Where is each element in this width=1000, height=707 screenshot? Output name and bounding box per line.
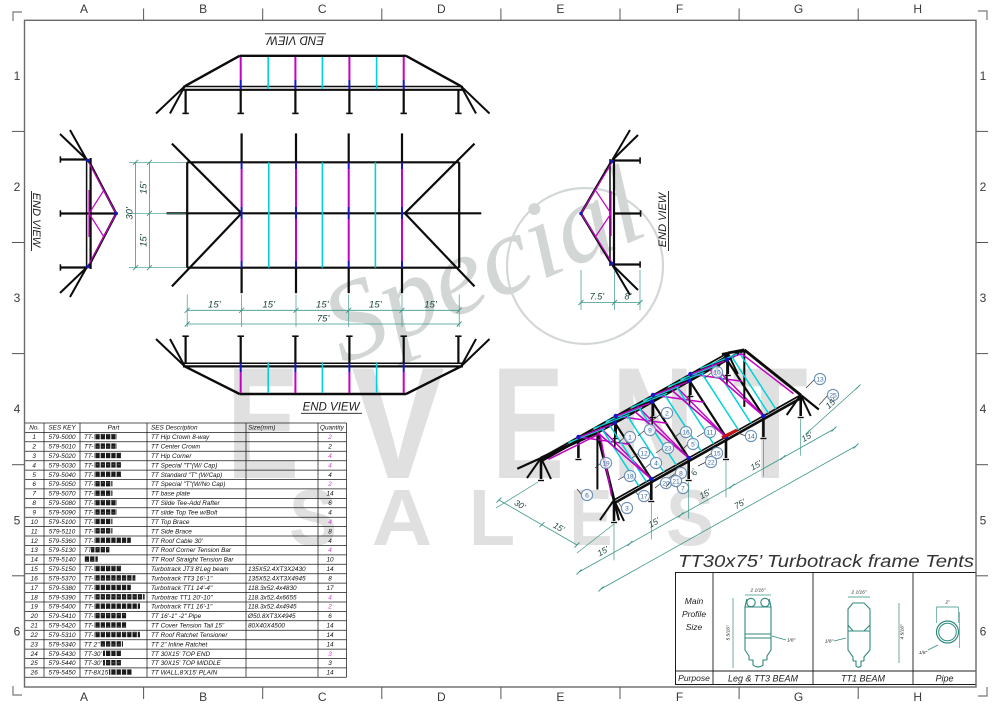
svg-text:Part: Part	[108, 425, 120, 432]
svg-text:Turbotrack TT1 14'-4": Turbotrack TT1 14'-4"	[151, 585, 213, 592]
svg-text:579-5310: 579-5310	[48, 632, 75, 639]
svg-text:Turbotrack TT1 16'-1": Turbotrack TT1 16'-1"	[151, 604, 213, 611]
svg-text:135X52.4XT3X4945: 135X52.4XT3X4945	[248, 575, 306, 582]
svg-text:2: 2	[327, 434, 332, 441]
svg-text:18: 18	[626, 473, 634, 480]
svg-text:1: 1	[628, 434, 632, 441]
svg-text:TT Special "T"(W/No Cap): TT Special "T"(W/No Cap)	[151, 481, 226, 488]
svg-text:579-5040: 579-5040	[48, 472, 75, 479]
svg-text:4: 4	[328, 462, 332, 469]
svg-text:TT-: TT-	[84, 575, 93, 582]
svg-text:TT WALL,8'X15' PLAIN: TT WALL,8'X15' PLAIN	[151, 670, 218, 677]
svg-text:END VIEW: END VIEW	[303, 402, 361, 414]
svg-text:8: 8	[32, 500, 36, 507]
svg-text:No.: No.	[29, 425, 39, 432]
svg-text:TT slide Top Tee w/Bolt: TT slide Top Tee w/Bolt	[151, 510, 218, 517]
svg-text:SES Description: SES Description	[151, 425, 198, 432]
svg-text:579-5440: 579-5440	[48, 660, 75, 667]
svg-text:579-5380: 579-5380	[48, 585, 75, 592]
svg-text:TT-: TT-	[84, 462, 93, 469]
svg-text:F: F	[676, 2, 683, 16]
svg-text:5: 5	[32, 472, 36, 479]
svg-text:16: 16	[682, 429, 690, 436]
svg-text:14: 14	[326, 623, 334, 630]
svg-text:3: 3	[625, 505, 629, 512]
svg-text:3: 3	[328, 660, 332, 667]
svg-text:26: 26	[30, 670, 39, 677]
svg-text:TT Slide Tee-Add Rafter: TT Slide Tee-Add Rafter	[151, 500, 221, 507]
svg-text:A: A	[80, 2, 88, 16]
svg-text:17: 17	[326, 585, 334, 592]
svg-text:Pipe: Pipe	[935, 674, 953, 684]
svg-text:2: 2	[327, 481, 332, 488]
svg-text:TT-: TT-	[84, 453, 93, 460]
svg-text:579-5030: 579-5030	[48, 462, 75, 469]
svg-text:118.3x52.4x6655: 118.3x52.4x6655	[248, 594, 297, 601]
svg-text:6: 6	[980, 624, 987, 638]
svg-text:2: 2	[980, 180, 987, 194]
svg-text:TT base plate: TT base plate	[151, 491, 191, 498]
svg-text:4: 4	[328, 538, 332, 545]
svg-text:6: 6	[585, 492, 589, 499]
svg-text:579-5370: 579-5370	[48, 575, 75, 582]
svg-text:20: 20	[30, 613, 39, 620]
svg-text:24: 24	[30, 651, 39, 658]
svg-text:118.3x52.4x4945: 118.3x52.4x4945	[248, 604, 297, 611]
svg-text:16: 16	[31, 575, 39, 582]
svg-text:14: 14	[747, 433, 755, 440]
svg-text:19: 19	[602, 460, 610, 467]
svg-text:23: 23	[30, 641, 39, 648]
svg-text:TT1 BEAM: TT1 BEAM	[841, 674, 886, 684]
svg-text:579-5410: 579-5410	[48, 613, 75, 620]
svg-text:15’: 15’	[139, 233, 150, 247]
svg-text:17: 17	[31, 585, 39, 592]
svg-text:579-5420: 579-5420	[48, 623, 75, 630]
svg-text:Leg & TT3 BEAM: Leg & TT3 BEAM	[728, 674, 799, 684]
svg-text:TT 30X15' TOP MIDDLE: TT 30X15' TOP MIDDLE	[151, 660, 222, 667]
svg-text:4: 4	[654, 460, 658, 467]
svg-text:2: 2	[327, 444, 332, 451]
svg-text:15’: 15’	[369, 300, 383, 311]
svg-text:579-5110: 579-5110	[49, 528, 76, 535]
svg-text:5: 5	[691, 441, 695, 448]
svg-text:Turbotrac TT1 20'-10": Turbotrac TT1 20'-10"	[151, 594, 213, 601]
svg-text:TT-: TT-	[84, 585, 93, 592]
svg-text:6: 6	[328, 613, 332, 620]
svg-text:579-5090: 579-5090	[48, 510, 75, 517]
svg-text:25: 25	[30, 660, 39, 667]
svg-text:579-5000: 579-5000	[48, 434, 75, 441]
svg-text:3: 3	[980, 291, 987, 305]
svg-text:2: 2	[31, 444, 36, 451]
svg-text:80X40X4500: 80X40X4500	[248, 623, 285, 630]
svg-text:13: 13	[31, 547, 39, 554]
svg-text:579-5130: 579-5130	[48, 547, 75, 554]
svg-text:TT-: TT-	[84, 594, 93, 601]
svg-text:TT Special "T"(W/ Cap): TT Special "T"(W/ Cap)	[151, 462, 217, 469]
svg-text:7: 7	[681, 485, 685, 492]
svg-text:2: 2	[14, 180, 21, 194]
svg-text:21: 21	[672, 478, 680, 485]
svg-text:579-5010: 579-5010	[48, 444, 75, 451]
svg-text:1/8": 1/8"	[825, 639, 834, 645]
svg-text:4: 4	[980, 402, 987, 416]
svg-text:3: 3	[14, 291, 21, 305]
svg-text:END VIEW: END VIEW	[657, 191, 669, 247]
svg-text:14: 14	[326, 632, 334, 639]
svg-text:TT 30X15' TOP END: TT 30X15' TOP END	[151, 651, 210, 658]
svg-text:TT-: TT-	[84, 481, 93, 488]
svg-text:TT Roof Ratchet Tensioner: TT Roof Ratchet Tensioner	[151, 632, 228, 639]
svg-text:1: 1	[14, 69, 21, 83]
svg-text:SES KEY: SES KEY	[48, 425, 76, 432]
svg-text:TT 16'-1" -2" Pipe: TT 16'-1" -2" Pipe	[151, 613, 202, 620]
svg-text:8: 8	[328, 528, 332, 535]
svg-text:579-5070: 579-5070	[48, 491, 75, 498]
svg-text:11: 11	[707, 429, 714, 436]
svg-text:23: 23	[664, 445, 672, 452]
svg-text:Size(mm): Size(mm)	[248, 425, 275, 432]
svg-text:15’: 15’	[208, 300, 222, 311]
svg-text:Turbotrack JT3 8'Leg beam: Turbotrack JT3 8'Leg beam	[151, 566, 229, 573]
svg-text:Quantity: Quantity	[320, 425, 345, 432]
svg-text:2 1/16": 2 1/16"	[749, 588, 765, 594]
svg-text:4 5/16": 4 5/16"	[900, 624, 906, 639]
svg-text:TT Center Crown: TT Center Crown	[151, 444, 200, 451]
svg-text:E: E	[556, 2, 564, 16]
svg-text:G: G	[794, 690, 803, 704]
svg-text:Profile: Profile	[682, 609, 706, 619]
svg-text:TT Hip Corner: TT Hip Corner	[151, 453, 192, 460]
svg-text:2 1/16": 2 1/16"	[850, 590, 866, 596]
svg-text:Purpose: Purpose	[678, 673, 710, 683]
svg-text:Turbotrack TT3 16'-1": Turbotrack TT3 16'-1"	[151, 575, 213, 582]
svg-text:TT-: TT-	[84, 528, 93, 535]
svg-text:TT-: TT-	[84, 623, 93, 630]
svg-text:2": 2"	[944, 600, 950, 606]
svg-text:1: 1	[32, 434, 36, 441]
svg-text:B: B	[199, 690, 207, 704]
svg-text:579-5430: 579-5430	[48, 651, 75, 658]
svg-text:14: 14	[326, 670, 334, 677]
svg-text:2: 2	[327, 604, 332, 611]
svg-text:TT Side Brace: TT Side Brace	[151, 528, 192, 535]
svg-text:TT 2": TT 2"	[84, 641, 100, 648]
svg-text:TT Hip Crown 8-way: TT Hip Crown 8-way	[151, 434, 210, 441]
svg-text:3: 3	[328, 651, 332, 658]
svg-text:75’: 75’	[317, 313, 331, 324]
svg-text:14: 14	[31, 557, 39, 564]
svg-text:22: 22	[707, 459, 715, 466]
svg-text:7.5’: 7.5’	[590, 292, 606, 302]
svg-text:G: G	[794, 2, 803, 16]
svg-text:6: 6	[14, 624, 21, 638]
svg-text:3: 3	[32, 453, 36, 460]
svg-text:118.3x52.4x4830: 118.3x52.4x4830	[248, 585, 297, 592]
svg-text:TT-: TT-	[84, 444, 93, 451]
svg-text:TT Cover Tension Tail 15": TT Cover Tension Tail 15"	[151, 623, 225, 630]
svg-text:9: 9	[648, 427, 652, 434]
svg-text:H: H	[913, 2, 922, 16]
svg-text:A: A	[80, 690, 88, 704]
svg-text:Size: Size	[686, 622, 703, 632]
svg-text:TT-8X15': TT-8X15'	[84, 670, 110, 677]
svg-text:18: 18	[31, 594, 39, 601]
svg-text:17: 17	[640, 493, 648, 500]
svg-text:TT30x75’ Turbotrack frame Tent: TT30x75’ Turbotrack frame Tents	[678, 551, 974, 571]
svg-text:TT-: TT-	[84, 604, 93, 611]
svg-text:579-5080: 579-5080	[48, 500, 75, 507]
svg-text:21: 21	[30, 623, 39, 630]
svg-text:TT-: TT-	[84, 613, 93, 620]
svg-text:4: 4	[14, 402, 21, 416]
svg-text:TT-: TT-	[84, 519, 93, 526]
svg-text:579-5050: 579-5050	[48, 481, 75, 488]
svg-text:TT-: TT-	[84, 434, 93, 441]
svg-text:579-5140: 579-5140	[48, 557, 75, 564]
svg-text:4: 4	[328, 510, 332, 517]
svg-text:12: 12	[640, 450, 648, 457]
svg-text:579-5150: 579-5150	[48, 566, 75, 573]
svg-text:L: L	[469, 472, 515, 562]
svg-text:22: 22	[30, 632, 39, 639]
svg-text:TT-: TT-	[84, 510, 93, 517]
svg-text:9: 9	[32, 510, 36, 517]
svg-text:12: 12	[31, 538, 39, 545]
svg-text:TT-: TT-	[84, 538, 93, 545]
svg-text:14: 14	[326, 641, 334, 648]
svg-text:TT 2" Inline Ratchet: TT 2" Inline Ratchet	[151, 641, 207, 648]
svg-text:30’: 30’	[125, 206, 136, 220]
svg-text:A: A	[372, 474, 433, 563]
svg-text:1: 1	[980, 69, 987, 83]
svg-text:B: B	[199, 2, 207, 16]
svg-text:1/8": 1/8"	[919, 650, 928, 656]
svg-text:7: 7	[32, 491, 36, 498]
svg-text:TT Roof Cable 30': TT Roof Cable 30'	[151, 538, 203, 545]
svg-text:5 5/16": 5 5/16"	[726, 625, 732, 640]
svg-text:8’: 8’	[624, 292, 632, 302]
svg-text:5: 5	[14, 513, 21, 527]
svg-text:4: 4	[328, 453, 332, 460]
svg-text:2: 2	[665, 410, 669, 417]
svg-text:135X52.4XT3X2430: 135X52.4XT3X2430	[248, 566, 306, 573]
svg-text:TT-: TT-	[84, 491, 93, 498]
svg-text:4: 4	[328, 519, 332, 526]
svg-text:11: 11	[31, 528, 38, 535]
svg-text:15’: 15’	[139, 181, 150, 195]
svg-text:Main: Main	[685, 596, 704, 606]
svg-text:H: H	[913, 690, 922, 704]
svg-text:10: 10	[326, 557, 334, 564]
svg-text:579-5100: 579-5100	[48, 519, 75, 526]
svg-text:14: 14	[326, 491, 334, 498]
svg-text:4: 4	[328, 547, 332, 554]
svg-text:C: C	[318, 690, 327, 704]
svg-text:TT-30': TT-30'	[84, 651, 102, 658]
svg-text:13: 13	[816, 376, 824, 383]
svg-text:D: D	[437, 2, 446, 16]
svg-text:F: F	[676, 690, 683, 704]
svg-text:15’: 15’	[262, 300, 276, 311]
svg-text:15’: 15’	[316, 300, 330, 311]
svg-text:TT Top Brace: TT Top Brace	[151, 519, 190, 526]
svg-text:D: D	[437, 690, 446, 704]
svg-text:579-5360: 579-5360	[48, 538, 75, 545]
svg-text:579-5340: 579-5340	[48, 641, 75, 648]
svg-text:8: 8	[328, 575, 332, 582]
svg-text:4: 4	[328, 472, 332, 479]
svg-text:579-5400: 579-5400	[48, 604, 75, 611]
svg-text:TT Roof Straight Tension Bar: TT Roof Straight Tension Bar	[151, 557, 234, 564]
svg-text:579-5450: 579-5450	[48, 670, 75, 677]
svg-text:15’: 15’	[424, 300, 438, 311]
svg-text:TT-: TT-	[84, 500, 93, 507]
svg-text:15: 15	[713, 450, 721, 457]
svg-text:4: 4	[32, 462, 36, 469]
svg-text:6: 6	[328, 500, 332, 507]
svg-text:4: 4	[328, 594, 332, 601]
svg-text:TT Standard "T" (W/Cap): TT Standard "T" (W/Cap)	[151, 472, 222, 479]
svg-text:TT-: TT-	[84, 632, 93, 639]
svg-text:6: 6	[32, 481, 36, 488]
svg-text:E: E	[556, 690, 564, 704]
svg-text:15: 15	[31, 566, 39, 573]
svg-text:10: 10	[31, 519, 39, 526]
svg-text:TT-: TT-	[84, 472, 93, 479]
svg-text:1/8": 1/8"	[787, 638, 796, 644]
svg-text:END VIEW: END VIEW	[266, 34, 324, 46]
svg-text:579-5020: 579-5020	[48, 453, 75, 460]
svg-text:14: 14	[326, 566, 334, 573]
svg-text:TT-30': TT-30'	[84, 660, 102, 667]
svg-text:TT-: TT-	[84, 566, 93, 573]
svg-text:TT Roof Corner Tension Bar: TT Roof Corner Tension Bar	[151, 547, 232, 554]
svg-text:5: 5	[980, 513, 987, 527]
svg-text:Ø50.8XT3X4945: Ø50.8XT3X4945	[247, 613, 296, 620]
svg-text:C: C	[318, 2, 327, 16]
svg-text:579-5390: 579-5390	[48, 594, 75, 601]
svg-text:19: 19	[31, 604, 39, 611]
svg-text:10: 10	[713, 369, 721, 376]
